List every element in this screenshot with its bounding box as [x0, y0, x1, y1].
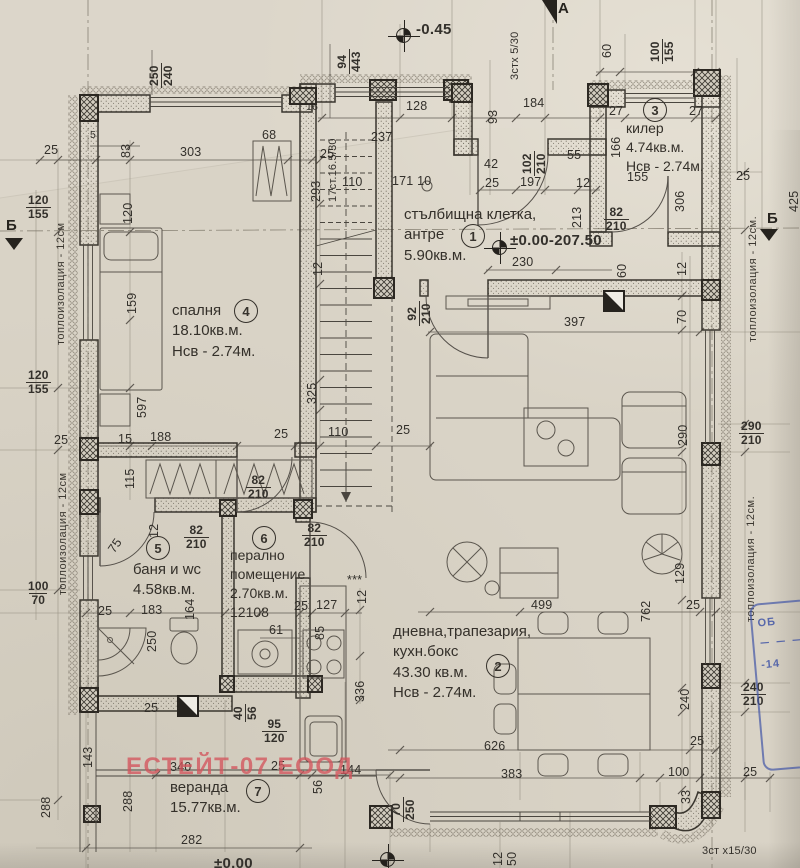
coffee-table [524, 408, 588, 466]
tv-unit [446, 296, 550, 309]
sofa [430, 334, 620, 480]
bed [100, 194, 162, 426]
floor-plan-drawing [0, 0, 800, 868]
side-table [447, 542, 499, 595]
toilet [170, 618, 198, 664]
armchair [622, 392, 686, 514]
column-symbol [178, 696, 198, 716]
plant [642, 534, 682, 574]
shower [98, 628, 146, 676]
watermark: ЕСТЕЙТ-07 ЕООД [126, 753, 354, 781]
entry-fixture [422, 181, 432, 191]
dining-table [494, 612, 650, 776]
walls [80, 75, 720, 831]
kitchen-island [500, 548, 558, 598]
washing-machine [238, 630, 292, 674]
column-symbol [604, 291, 624, 311]
floor-plan-sheet: 9444312893184162371001556027271661552530… [0, 0, 800, 868]
